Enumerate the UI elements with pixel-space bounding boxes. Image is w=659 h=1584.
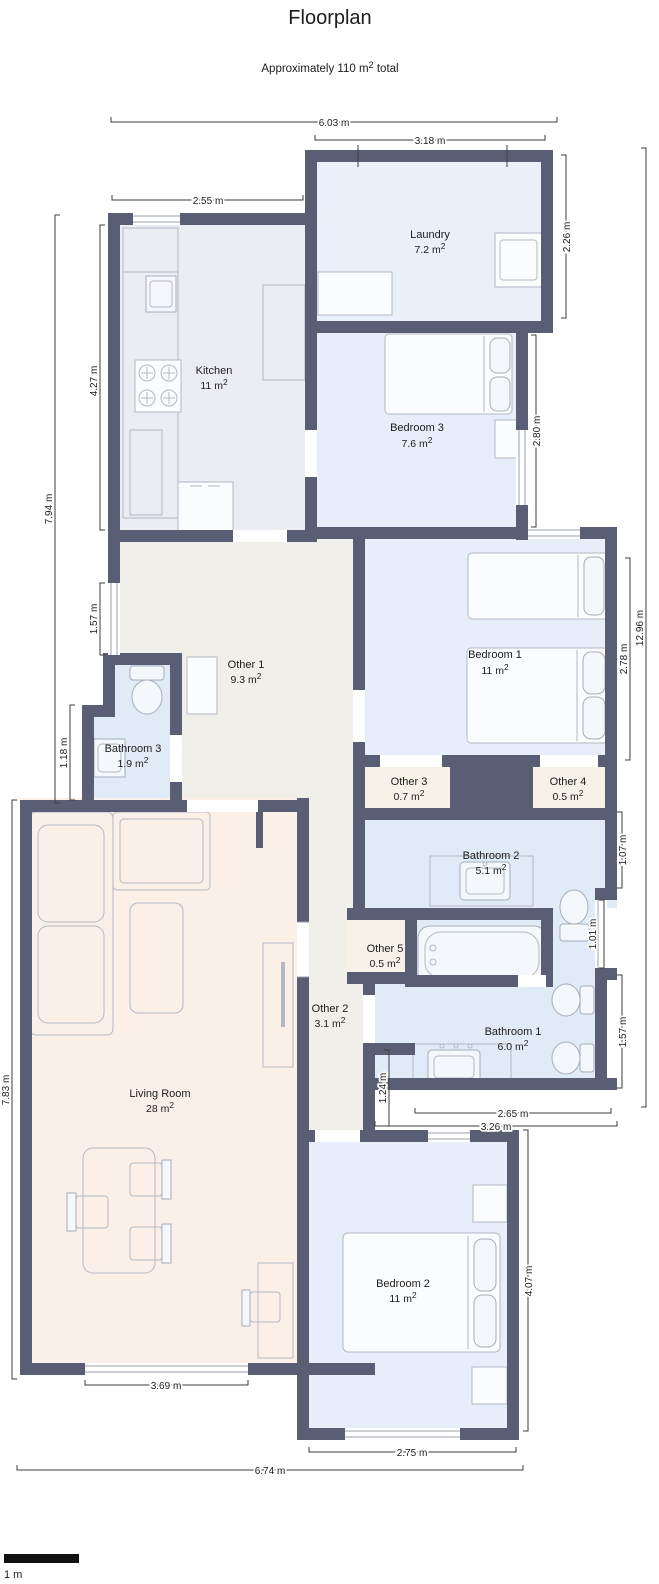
svg-text:2.55 m: 2.55 m	[193, 196, 224, 207]
svg-text:4.07 m: 4.07 m	[524, 1266, 535, 1297]
dim-6-03: 6.03 m	[111, 117, 557, 129]
page-subtitle: Approximately 110 m2 total	[261, 60, 398, 75]
kitchen-window-icon	[133, 213, 180, 225]
dim-2-65: 2.65 m	[415, 1108, 611, 1120]
svg-text:Bedroom 2: Bedroom 2	[376, 1278, 430, 1290]
bedroom3-window-icon	[516, 430, 528, 505]
svg-text:1.01 m: 1.01 m	[588, 919, 599, 950]
dim-7-83: 7.83 m	[1, 800, 17, 1379]
stove-icon	[135, 360, 181, 412]
livingroom-passage-opening	[297, 922, 309, 977]
svg-text:7.83 m: 7.83 m	[1, 1075, 12, 1106]
svg-text:1.57 m: 1.57 m	[618, 1017, 629, 1048]
svg-text:Bedroom 3: Bedroom 3	[390, 422, 444, 434]
svg-text:Bathroom 1: Bathroom 1	[485, 1026, 542, 1038]
svg-text:2.80 m: 2.80 m	[532, 416, 543, 447]
dim-3-69: 3.69 m	[85, 1380, 248, 1392]
svg-text:1.18 m: 1.18 m	[59, 738, 70, 769]
dim-2-55: 2.55 m	[112, 195, 303, 207]
dim-4-07: 4.07 m	[523, 1130, 535, 1431]
bedroom1-single-bed-icon	[468, 553, 608, 619]
dim-1-18: 1.18 m	[59, 705, 75, 800]
bedroom2-nightstand-upper-icon	[473, 1185, 507, 1222]
dim-2-26: 2.26 m	[561, 155, 573, 318]
svg-text:Living Room: Living Room	[129, 1088, 190, 1100]
livingroom-window-icon	[85, 1363, 248, 1375]
laundry-counter-icon	[318, 272, 392, 315]
room-livingroom-floor	[20, 798, 309, 1375]
kitchen-island-icon	[178, 482, 233, 532]
svg-text:Bathroom 2: Bathroom 2	[463, 850, 520, 862]
dim-6-74: 6.74 m	[17, 1465, 523, 1477]
svg-text:Other 1: Other 1	[228, 659, 265, 671]
svg-text:2.26 m: 2.26 m	[562, 222, 573, 253]
scale-bar-rect	[4, 1554, 79, 1563]
bathroom3-door	[170, 735, 182, 782]
svg-text:2.65 m: 2.65 m	[498, 1109, 529, 1120]
svg-text:Other 5: Other 5	[367, 943, 404, 955]
svg-text:6.03 m: 6.03 m	[319, 118, 350, 129]
svg-text:3.26 m: 3.26 m	[481, 1122, 512, 1133]
dim-4-27: 4.27 m	[89, 225, 105, 530]
scale-bar: 1 m	[4, 1554, 79, 1581]
floorplan-canvas: Floorplan Approximately 110 m2 total	[0, 0, 659, 1584]
svg-text:Laundry: Laundry	[410, 229, 450, 241]
bathroom1-door	[363, 995, 375, 1043]
svg-text:1.24 m: 1.24 m	[378, 1073, 389, 1104]
bedroom1-door	[353, 690, 365, 742]
svg-text:Bathroom 3: Bathroom 3	[105, 743, 162, 755]
dim-3-18: 3.18 m	[315, 135, 545, 147]
other4-door	[540, 755, 598, 767]
bedroom3-bed-icon	[385, 334, 512, 414]
bathtub-room-door	[518, 975, 546, 987]
svg-text:1.07 m: 1.07 m	[618, 835, 629, 866]
svg-text:1.57 m: 1.57 m	[89, 604, 100, 635]
bedroom1-double-bed-icon	[467, 648, 608, 743]
hallway-cabinet-icon	[187, 657, 217, 714]
bedroom2-nightstand-lower-icon	[472, 1367, 507, 1404]
bedroom3-door	[305, 430, 317, 477]
dim-2-78: 2.78 m	[619, 558, 630, 760]
scale-bar-label: 1 m	[4, 1569, 22, 1581]
dim-12-96: 12.96 m	[635, 148, 646, 1107]
svg-text:7.94 m: 7.94 m	[44, 494, 55, 525]
svg-text:Other 4: Other 4	[550, 776, 587, 788]
bedroom3-nightstand-icon	[495, 420, 517, 458]
dim-1-07: 1.07 m	[617, 812, 629, 888]
bathroom1-toilet-lower-icon	[552, 1042, 594, 1074]
washing-machine-icon	[495, 233, 542, 287]
svg-text:12.96 m: 12.96 m	[635, 610, 646, 646]
bedroom2-bottom-window-icon	[345, 1428, 460, 1440]
bedroom2-top-window-icon	[428, 1130, 470, 1142]
bathroom3-toilet-icon	[130, 666, 164, 714]
svg-text:Kitchen: Kitchen	[196, 365, 233, 377]
svg-text:3.18 m: 3.18 m	[415, 136, 446, 147]
svg-text:Other 2: Other 2	[312, 1003, 349, 1015]
bathroom2-toilet-icon	[560, 890, 589, 941]
svg-text:3.69 m: 3.69 m	[151, 1381, 182, 1392]
page-title: Floorplan	[288, 7, 371, 29]
svg-text:Other 3: Other 3	[391, 776, 428, 788]
svg-text:Bedroom 1: Bedroom 1	[468, 649, 522, 661]
dim-7-94: 7.94 m	[44, 215, 60, 803]
dim-2-80: 2.80 m	[531, 335, 543, 527]
dim-1-57-left: 1.57 m	[89, 583, 105, 655]
bedroom1-window-icon	[528, 527, 580, 539]
bedroom2-bed-icon	[343, 1233, 500, 1352]
hallway-window-icon	[108, 583, 120, 655]
dim-2-75: 2.75 m	[309, 1447, 516, 1459]
kitchen-door	[233, 530, 287, 542]
svg-text:6.74 m: 6.74 m	[255, 1466, 286, 1477]
dim-1-57-right: 1.57 m	[617, 975, 629, 1088]
bedroom2-door	[315, 1130, 360, 1142]
svg-text:2.78 m: 2.78 m	[619, 644, 630, 675]
svg-text:2.75 m: 2.75 m	[397, 1448, 428, 1459]
other3-door	[380, 755, 442, 767]
bathroom1-toilet-upper-icon	[552, 984, 594, 1016]
svg-text:4.27 m: 4.27 m	[89, 366, 100, 397]
